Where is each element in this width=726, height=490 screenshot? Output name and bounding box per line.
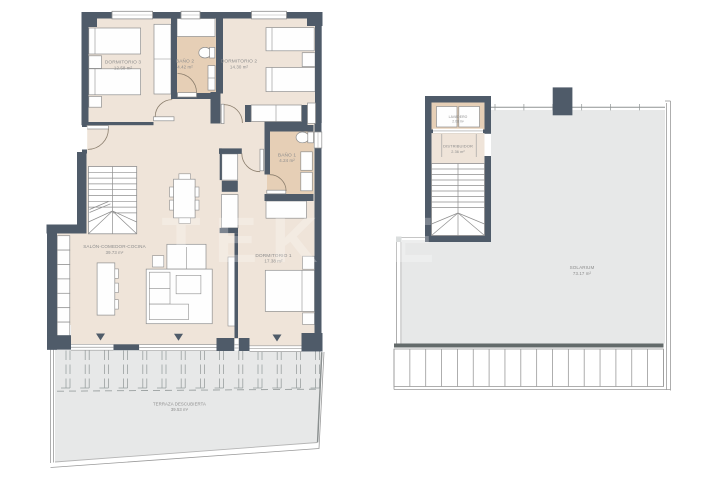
svg-text:2.36 m²: 2.36 m² [451, 150, 465, 154]
svg-text:4.24 m²: 4.24 m² [279, 158, 295, 163]
svg-text:39.73 m²: 39.73 m² [106, 250, 124, 255]
svg-text:4.42 m²: 4.42 m² [177, 64, 193, 69]
svg-text:39.53 m²: 39.53 m² [171, 407, 189, 412]
svg-text:LAVADERO: LAVADERO [449, 115, 468, 119]
svg-text:12.58 m²: 12.58 m² [114, 66, 133, 71]
svg-text:BAÑO 2: BAÑO 2 [176, 57, 194, 64]
svg-text:14.30 m²: 14.30 m² [230, 64, 249, 69]
svg-text:73.17 m²: 73.17 m² [573, 271, 592, 276]
svg-text:2.08 m²: 2.08 m² [452, 120, 464, 124]
svg-text:DISTRIBUIDOR: DISTRIBUIDOR [443, 144, 473, 149]
svg-text:SOLARIUM: SOLARIUM [570, 265, 595, 270]
svg-text:SALÓN-COMEDOR-COCINA: SALÓN-COMEDOR-COCINA [83, 243, 146, 249]
svg-text:TERRAZA DESCUBIERTA: TERRAZA DESCUBIERTA [153, 402, 206, 407]
svg-text:TEKCE: TEKCE [162, 204, 449, 276]
